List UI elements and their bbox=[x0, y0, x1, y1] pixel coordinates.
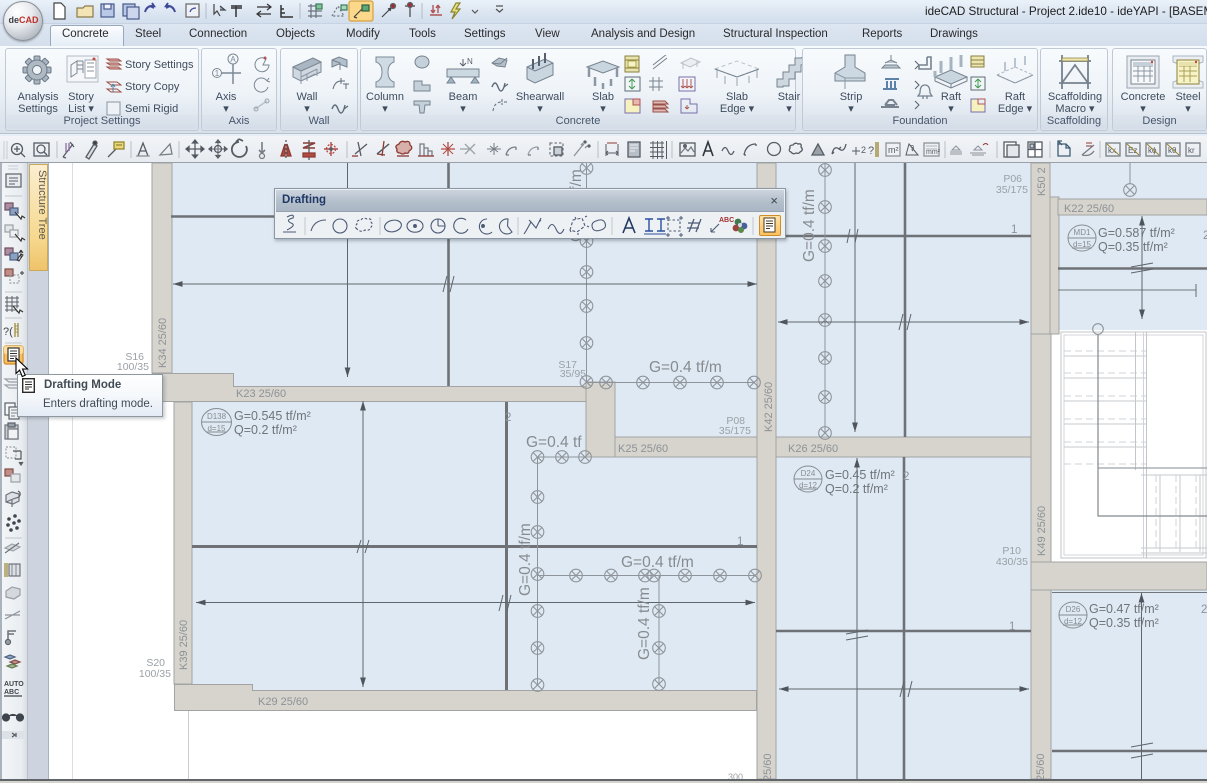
svg-text:D24: D24 bbox=[801, 469, 816, 478]
svg-text:MD1: MD1 bbox=[1074, 228, 1091, 237]
svg-text:G=0.545 tf/m²: G=0.545 tf/m² bbox=[234, 409, 311, 423]
svg-text:kθ: kθ bbox=[1168, 146, 1177, 155]
svg-text:G=0.47 tf/m²: G=0.47 tf/m² bbox=[1089, 602, 1159, 616]
svg-text:100/35: 100/35 bbox=[139, 668, 171, 680]
svg-text:d=12: d=12 bbox=[1064, 617, 1083, 626]
svg-text:K26 25/60: K26 25/60 bbox=[788, 443, 838, 455]
svg-text:Q=0.2 tf/m²: Q=0.2 tf/m² bbox=[825, 482, 888, 496]
svg-text:G=0.45 tf/m²: G=0.45 tf/m² bbox=[825, 468, 895, 482]
svg-text:G=0.4 tf/m: G=0.4 tf/m bbox=[621, 554, 694, 571]
svg-text:m²: m² bbox=[888, 145, 899, 155]
svg-text:G=0.4 tf/m: G=0.4 tf/m bbox=[636, 587, 653, 660]
svg-text:1: 1 bbox=[215, 69, 220, 78]
svg-text:2: 2 bbox=[1201, 604, 1207, 616]
svg-text:G=0.4 tf/m: G=0.4 tf/m bbox=[517, 523, 534, 596]
svg-text:A: A bbox=[230, 55, 236, 64]
svg-text:K50 2: K50 2 bbox=[1036, 167, 1048, 196]
svg-text:d=15: d=15 bbox=[1073, 240, 1092, 249]
svg-text:25/60: 25/60 bbox=[762, 753, 774, 779]
svg-text:100/35: 100/35 bbox=[117, 361, 149, 373]
svg-text:?: ? bbox=[910, 145, 914, 152]
svg-text:35/95: 35/95 bbox=[560, 368, 586, 380]
svg-text:AUTO: AUTO bbox=[4, 681, 24, 688]
svg-text:25/60: 25/60 bbox=[1035, 753, 1047, 779]
svg-text:Q=0.35 tf/m²: Q=0.35 tf/m² bbox=[1089, 616, 1159, 630]
svg-text:kr: kr bbox=[1188, 146, 1195, 155]
svg-text:N: N bbox=[467, 57, 473, 66]
svg-text:G=0.587 tf/m²: G=0.587 tf/m² bbox=[1098, 226, 1175, 240]
svg-text:G=0.4 tf/m: G=0.4 tf/m bbox=[649, 359, 722, 376]
svg-text:35/175: 35/175 bbox=[996, 184, 1028, 196]
svg-text:K22 25/60: K22 25/60 bbox=[1064, 203, 1114, 215]
svg-text:K49 25/60: K49 25/60 bbox=[1036, 506, 1048, 556]
svg-text:?(: ?( bbox=[3, 326, 13, 338]
svg-text:d=15: d=15 bbox=[207, 424, 226, 433]
svg-text:K23 25/60: K23 25/60 bbox=[236, 388, 286, 400]
svg-text:D26: D26 bbox=[1066, 605, 1081, 614]
svg-text:1: 1 bbox=[737, 536, 743, 548]
svg-text:Q=0.35 tf/m²: Q=0.35 tf/m² bbox=[1098, 240, 1168, 254]
svg-text:mm²: mm² bbox=[926, 149, 941, 156]
svg-text:Ez: Ez bbox=[1128, 146, 1137, 155]
svg-text:35/175: 35/175 bbox=[719, 425, 751, 437]
svg-text:G=0.4 tf: G=0.4 tf bbox=[526, 434, 582, 451]
svg-text:K34 25/60: K34 25/60 bbox=[157, 318, 169, 368]
svg-text:?: ? bbox=[868, 145, 874, 157]
svg-text:2: 2 bbox=[1203, 230, 1207, 242]
svg-text:1: 1 bbox=[1009, 621, 1015, 633]
svg-text:1: 1 bbox=[1011, 224, 1017, 236]
svg-text:K42 25/60: K42 25/60 bbox=[763, 382, 775, 432]
svg-text:K39 25/60: K39 25/60 bbox=[178, 620, 190, 670]
svg-text:d=12: d=12 bbox=[799, 481, 818, 490]
svg-text:ABC: ABC bbox=[719, 217, 734, 224]
svg-text:ABC: ABC bbox=[4, 689, 19, 696]
svg-text:G=0.4 tf/m: G=0.4 tf/m bbox=[801, 189, 818, 262]
svg-text:K25 25/60: K25 25/60 bbox=[618, 443, 668, 455]
svg-text:430/35: 430/35 bbox=[996, 556, 1028, 568]
svg-text:D138: D138 bbox=[207, 412, 227, 421]
svg-text:300: 300 bbox=[728, 772, 743, 779]
svg-text:Q=0.2 tf/m²: Q=0.2 tf/m² bbox=[234, 423, 297, 437]
svg-text:2: 2 bbox=[505, 412, 511, 424]
svg-text:K29 25/60: K29 25/60 bbox=[258, 696, 308, 708]
svg-text:2: 2 bbox=[861, 145, 866, 155]
svg-text:kϕ: kϕ bbox=[1148, 146, 1157, 155]
svg-text:2: 2 bbox=[903, 471, 909, 483]
